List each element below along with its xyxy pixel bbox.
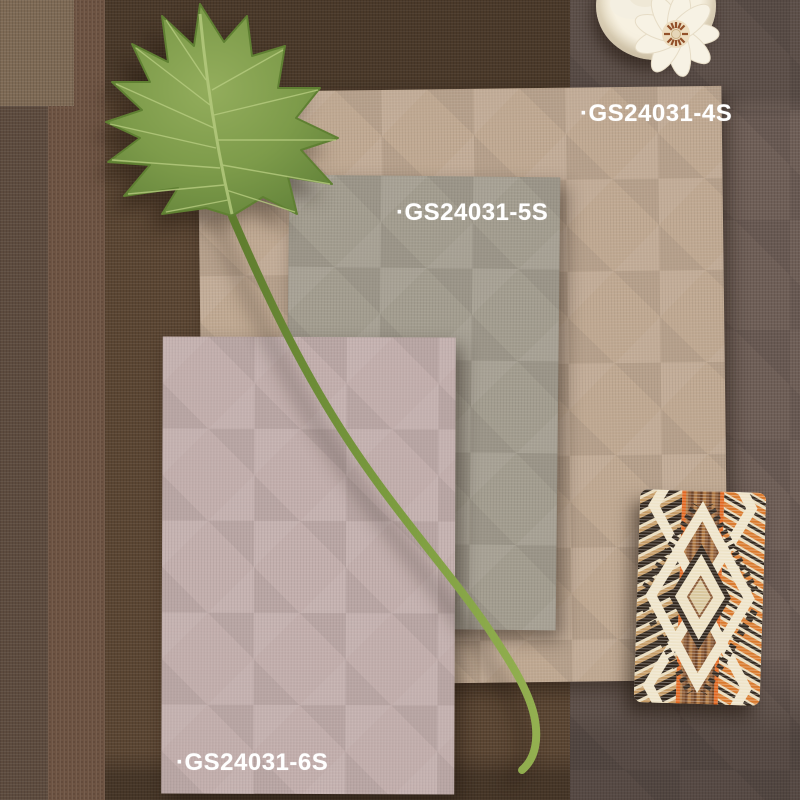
label-gs24031-6s: ·GS24031-6S [176, 749, 328, 777]
label-gs24031-5s: ·GS24031-5S [396, 199, 548, 227]
fabric-flatlay-photo: ·GS24031-4S ·GS24031-5S ·GS24031-6S [0, 0, 800, 800]
leaf-blade [106, 4, 338, 216]
label-gs24031-4s: ·GS24031-4S [580, 100, 732, 128]
leaf-stem [232, 216, 536, 770]
